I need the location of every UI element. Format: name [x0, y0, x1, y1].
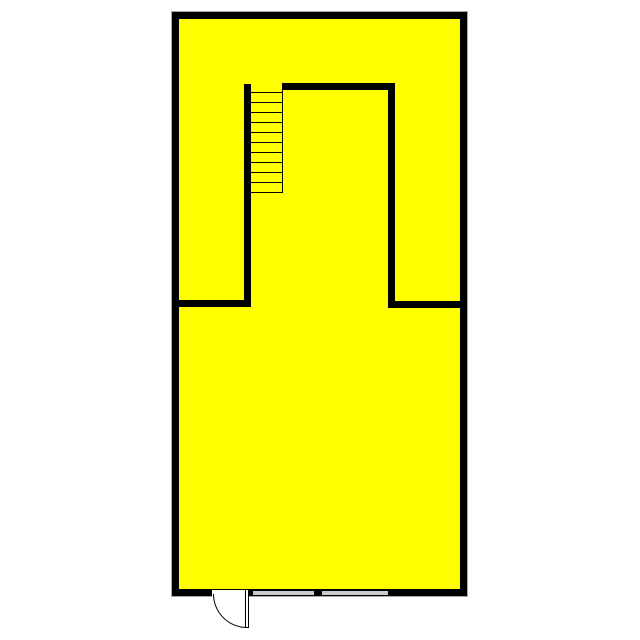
stair-tread [251, 172, 283, 173]
stair-tread [251, 142, 283, 143]
stair-tread [251, 152, 283, 153]
staircase [251, 84, 283, 194]
stair-tread [251, 162, 283, 163]
window-right [322, 591, 389, 595]
upper-room-right-wall [388, 83, 395, 308]
door-swing-arc [213, 594, 247, 628]
mid-left-wall [172, 300, 251, 307]
stair-rail [282, 84, 284, 193]
floor-plan-canvas [0, 0, 640, 640]
stair-tread [251, 92, 283, 93]
stair-tread [251, 112, 283, 113]
stair-tread [251, 132, 283, 133]
upper-room-left-wall [244, 84, 251, 307]
upper-room-top-wall [282, 83, 395, 90]
stair-tread [251, 102, 283, 103]
stair-tread [251, 182, 283, 183]
mid-right-wall [388, 301, 467, 308]
stair-tread [251, 192, 283, 193]
stair-tread [251, 122, 283, 123]
window-left [253, 591, 314, 595]
